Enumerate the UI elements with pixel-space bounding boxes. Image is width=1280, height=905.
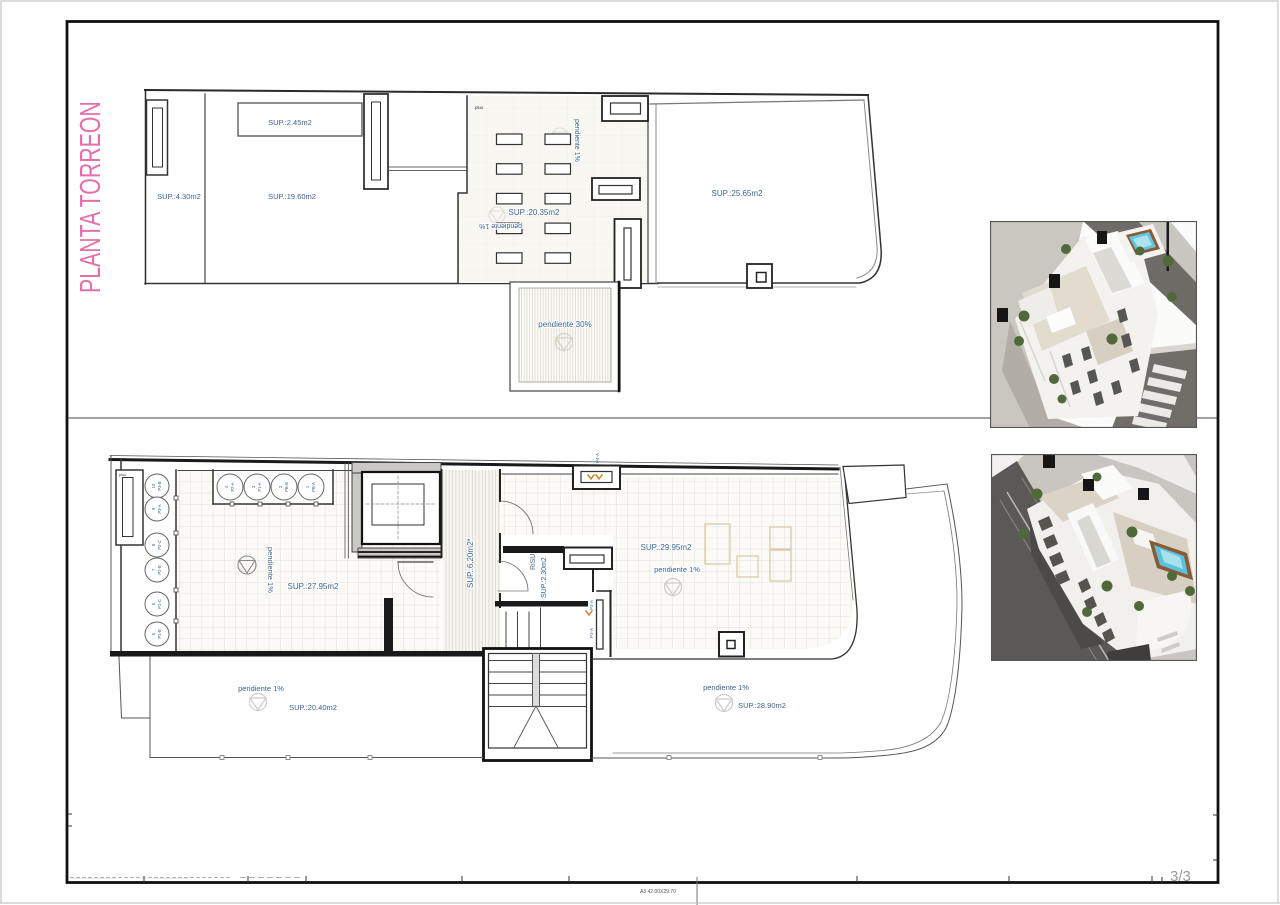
svg-text:P1-A: P1-A: [257, 482, 262, 492]
svg-text:SUP.:20.35m2: SUP.:20.35m2: [509, 208, 561, 217]
svg-text:PB-A: PB-A: [311, 482, 316, 492]
svg-text:..............................: .....................................: [152, 876, 188, 880]
svg-text:pluv: pluv: [475, 105, 484, 110]
svg-text:P2-B: P2-B: [157, 565, 162, 575]
svg-text:SUP.:20.40m2: SUP.:20.40m2: [289, 703, 337, 712]
svg-text:pendiente 1%: pendiente 1%: [238, 684, 284, 693]
svg-text:P3-A: P3-A: [589, 628, 594, 638]
svg-text:pendiente 1%: pendiente 1%: [573, 119, 580, 162]
svg-text:SUP.:2.30m2: SUP.:2.30m2: [541, 557, 548, 598]
svg-text:pendiente 1%: pendiente 1%: [266, 547, 275, 593]
svg-text:SUP.:19.60m2: SUP.:19.60m2: [268, 192, 316, 201]
svg-text:SUP.:4.30m2: SUP.:4.30m2: [157, 192, 201, 201]
svg-text:P4-A: P4-A: [595, 453, 600, 463]
svg-text:SUP.:28.90m2: SUP.:28.90m2: [738, 701, 786, 710]
svg-text:..............................: ........................................…: [70, 876, 117, 880]
svg-text:SUP.:25.65m2: SUP.:25.65m2: [712, 189, 764, 198]
svg-text:P3-A: P3-A: [157, 504, 162, 514]
svg-text:pendiente 1%: pendiente 1%: [479, 222, 522, 229]
svg-text:P3-B: P3-B: [157, 481, 162, 491]
svg-text:P2-C: P2-C: [157, 540, 162, 550]
svg-text:P1-B: P1-B: [157, 629, 162, 639]
svg-text:SUP.:27.95m2: SUP.:27.95m2: [288, 582, 340, 591]
svg-text:pluv: pluv: [119, 473, 126, 477]
svg-text:PLANTA TORREON: PLANTA TORREON: [75, 101, 107, 293]
svg-text:PB-B: PB-B: [284, 482, 289, 492]
svg-text:pendiente 1%: pendiente 1%: [654, 565, 700, 574]
svg-text:A3 42.00X29.70: A3 42.00X29.70: [640, 889, 676, 895]
svg-text:P3-A: P3-A: [589, 600, 594, 610]
svg-text:RiSU: RiSU: [530, 554, 537, 570]
svg-text:3/3: 3/3: [1170, 868, 1191, 885]
svg-text:SUP.:2.45m2: SUP.:2.45m2: [268, 118, 312, 127]
svg-text:10: 10: [151, 483, 156, 488]
svg-text:SUP.:6.20m2*: SUP.:6.20m2*: [466, 538, 475, 588]
svg-text:P2-A: P2-A: [230, 482, 235, 492]
svg-text:P1-C: P1-C: [157, 599, 162, 609]
svg-text:SUP.:29.95m2: SUP.:29.95m2: [641, 543, 693, 552]
svg-text:pendiente 30%: pendiente 30%: [538, 320, 591, 329]
svg-text:pendiente 1%: pendiente 1%: [703, 683, 749, 692]
